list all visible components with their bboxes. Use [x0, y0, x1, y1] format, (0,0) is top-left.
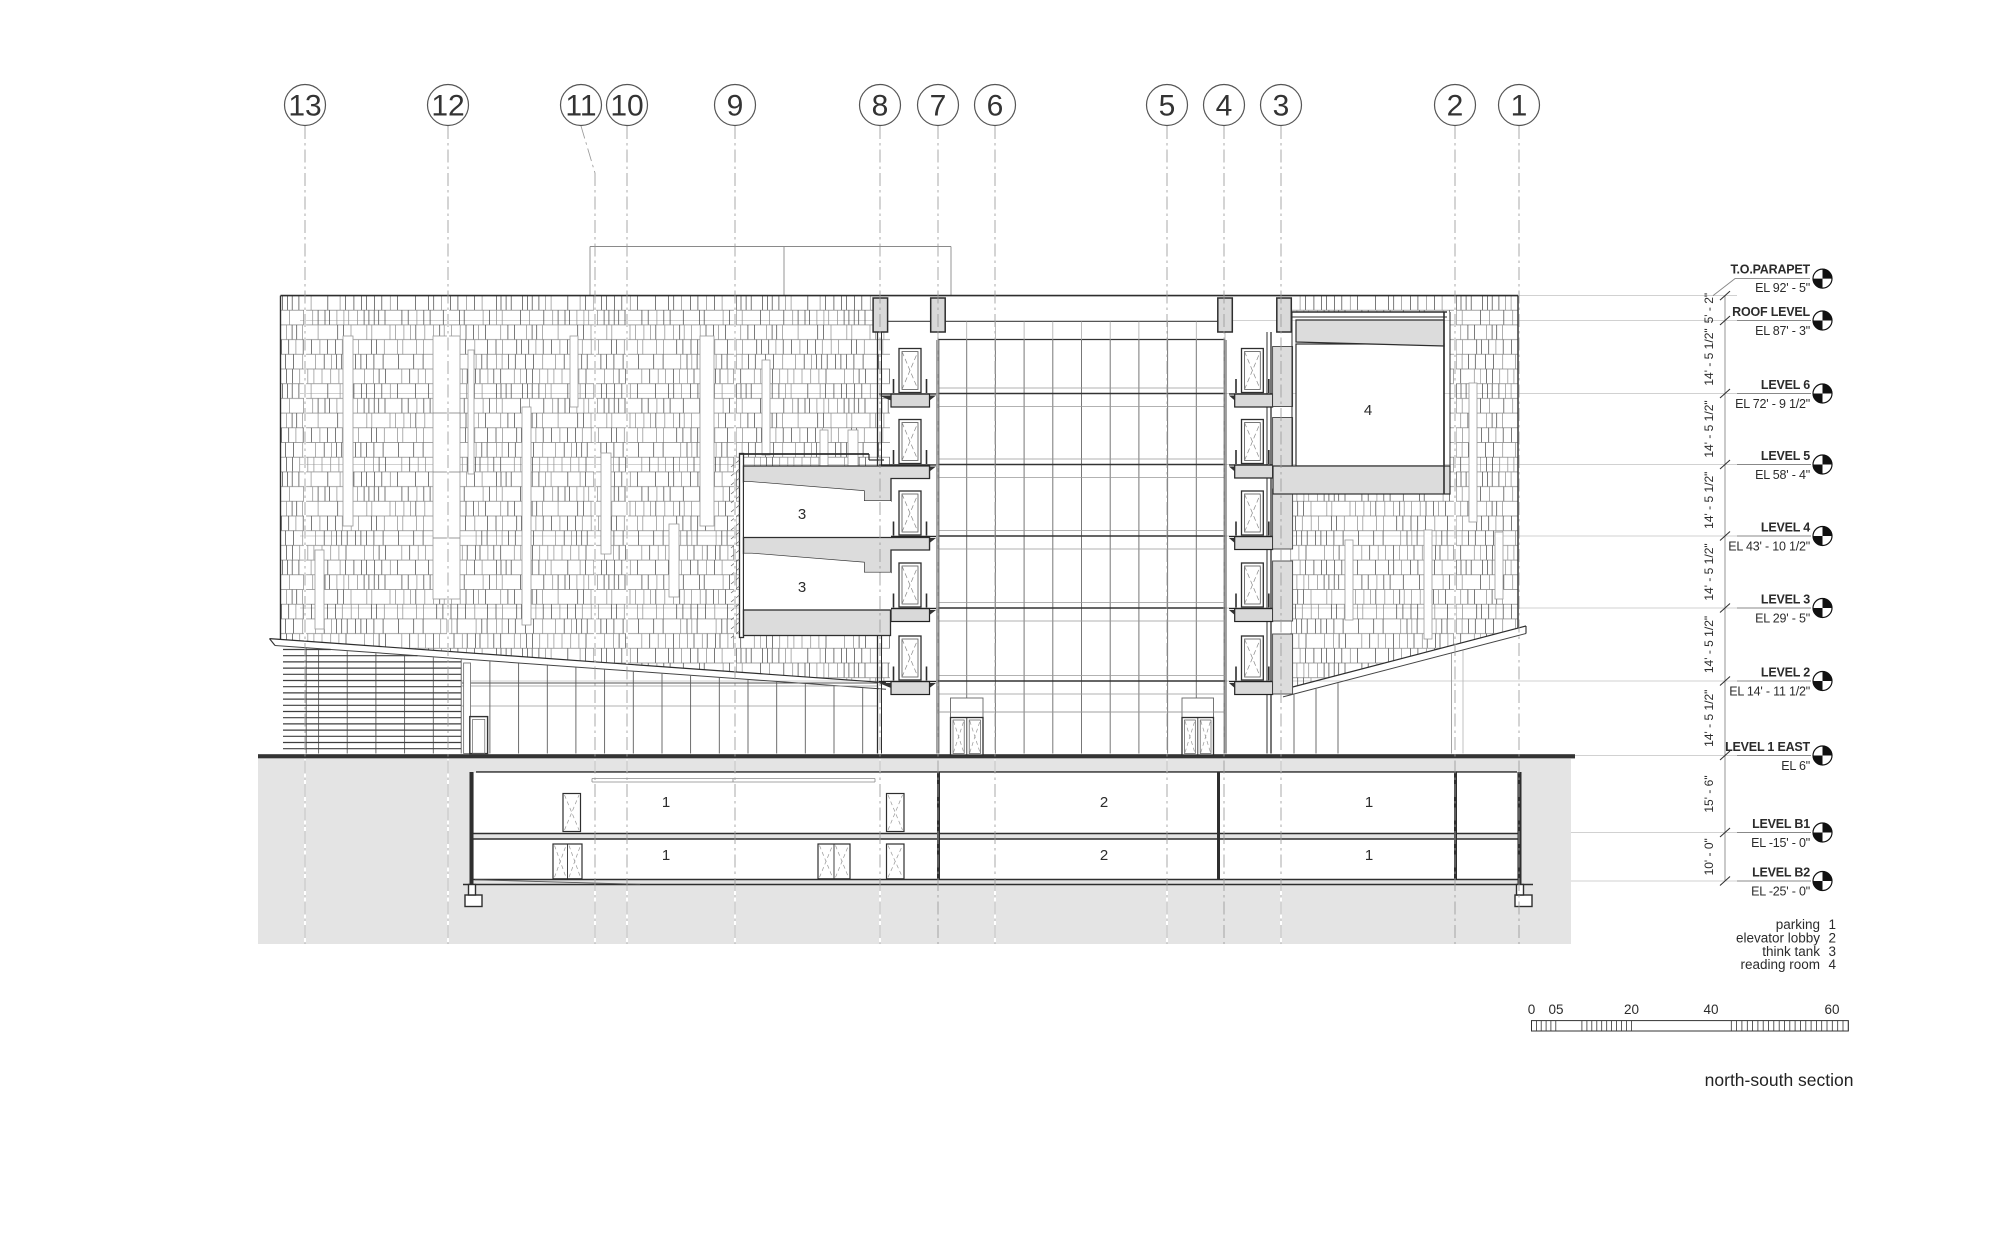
svg-text:1: 1	[1511, 90, 1528, 123]
svg-text:LEVEL 2: LEVEL 2	[1761, 666, 1810, 680]
svg-text:60: 60	[1824, 1002, 1839, 1017]
svg-text:13: 13	[288, 90, 321, 123]
svg-text:ROOF LEVEL: ROOF LEVEL	[1732, 305, 1810, 319]
svg-text:LEVEL 4: LEVEL 4	[1761, 521, 1810, 535]
svg-text:1: 1	[662, 847, 670, 864]
svg-text:reading room: reading room	[1740, 957, 1820, 972]
svg-text:T.O.PARAPET: T.O.PARAPET	[1730, 263, 1810, 277]
svg-text:LEVEL B1: LEVEL B1	[1752, 817, 1810, 831]
svg-text:EL 58' - 4": EL 58' - 4"	[1755, 468, 1810, 482]
svg-text:5: 5	[1159, 90, 1176, 123]
svg-text:LEVEL 6: LEVEL 6	[1761, 378, 1810, 392]
svg-text:14' - 5 1/2": 14' - 5 1/2"	[1702, 616, 1716, 673]
svg-text:LEVEL 3: LEVEL 3	[1761, 593, 1810, 607]
svg-text:4: 4	[1364, 402, 1372, 419]
svg-text:EL 43' - 10 1/2": EL 43' - 10 1/2"	[1728, 540, 1810, 554]
svg-text:11: 11	[565, 90, 596, 123]
svg-text:EL 72' - 9 1/2": EL 72' - 9 1/2"	[1735, 397, 1810, 411]
svg-text:LEVEL 5: LEVEL 5	[1761, 449, 1810, 463]
svg-text:LEVEL B2: LEVEL B2	[1752, 866, 1810, 880]
svg-text:40: 40	[1703, 1002, 1718, 1017]
svg-text:14' - 5 1/2": 14' - 5 1/2"	[1702, 690, 1716, 747]
svg-text:14' - 5 1/2": 14' - 5 1/2"	[1702, 328, 1716, 385]
svg-text:15' - 6": 15' - 6"	[1702, 775, 1716, 812]
svg-text:EL 87' - 3": EL 87' - 3"	[1755, 324, 1810, 338]
svg-text:EL 92' - 5": EL 92' - 5"	[1755, 281, 1810, 295]
svg-text:2: 2	[1100, 794, 1108, 811]
svg-text:9: 9	[727, 90, 744, 123]
svg-text:EL -15' - 0": EL -15' - 0"	[1751, 836, 1810, 850]
svg-text:14' - 5 1/2": 14' - 5 1/2"	[1702, 400, 1716, 457]
svg-text:12: 12	[431, 90, 464, 123]
svg-text:05: 05	[1548, 1002, 1563, 1017]
svg-text:7: 7	[930, 90, 947, 123]
svg-text:5' - 2": 5' - 2"	[1702, 293, 1716, 324]
svg-text:LEVEL 1 EAST: LEVEL 1 EAST	[1725, 740, 1810, 754]
svg-text:1: 1	[1365, 847, 1373, 864]
svg-text:20: 20	[1624, 1002, 1639, 1017]
svg-text:1: 1	[1365, 794, 1373, 811]
svg-text:3: 3	[1273, 90, 1290, 123]
svg-text:EL -25' - 0": EL -25' - 0"	[1751, 885, 1810, 899]
svg-text:3: 3	[798, 579, 806, 596]
svg-text:4: 4	[1216, 90, 1233, 123]
svg-text:EL 6": EL 6"	[1781, 759, 1810, 773]
svg-text:EL 29' - 5": EL 29' - 5"	[1755, 612, 1810, 626]
svg-text:2: 2	[1447, 90, 1464, 123]
svg-text:10' - 0": 10' - 0"	[1702, 838, 1716, 875]
svg-text:14' - 5 1/2": 14' - 5 1/2"	[1702, 543, 1716, 600]
svg-text:14' - 5 1/2": 14' - 5 1/2"	[1702, 472, 1716, 529]
svg-text:0: 0	[1528, 1002, 1536, 1017]
svg-text:north-south section: north-south section	[1705, 1070, 1854, 1090]
svg-text:6: 6	[987, 90, 1004, 123]
svg-text:2: 2	[1100, 847, 1108, 864]
svg-text:EL 14' - 11 1/2": EL 14' - 11 1/2"	[1729, 685, 1810, 699]
svg-text:3: 3	[798, 506, 806, 523]
svg-text:1: 1	[662, 794, 670, 811]
svg-text:8: 8	[872, 90, 889, 123]
svg-text:4: 4	[1828, 957, 1836, 972]
svg-text:10: 10	[610, 90, 643, 123]
